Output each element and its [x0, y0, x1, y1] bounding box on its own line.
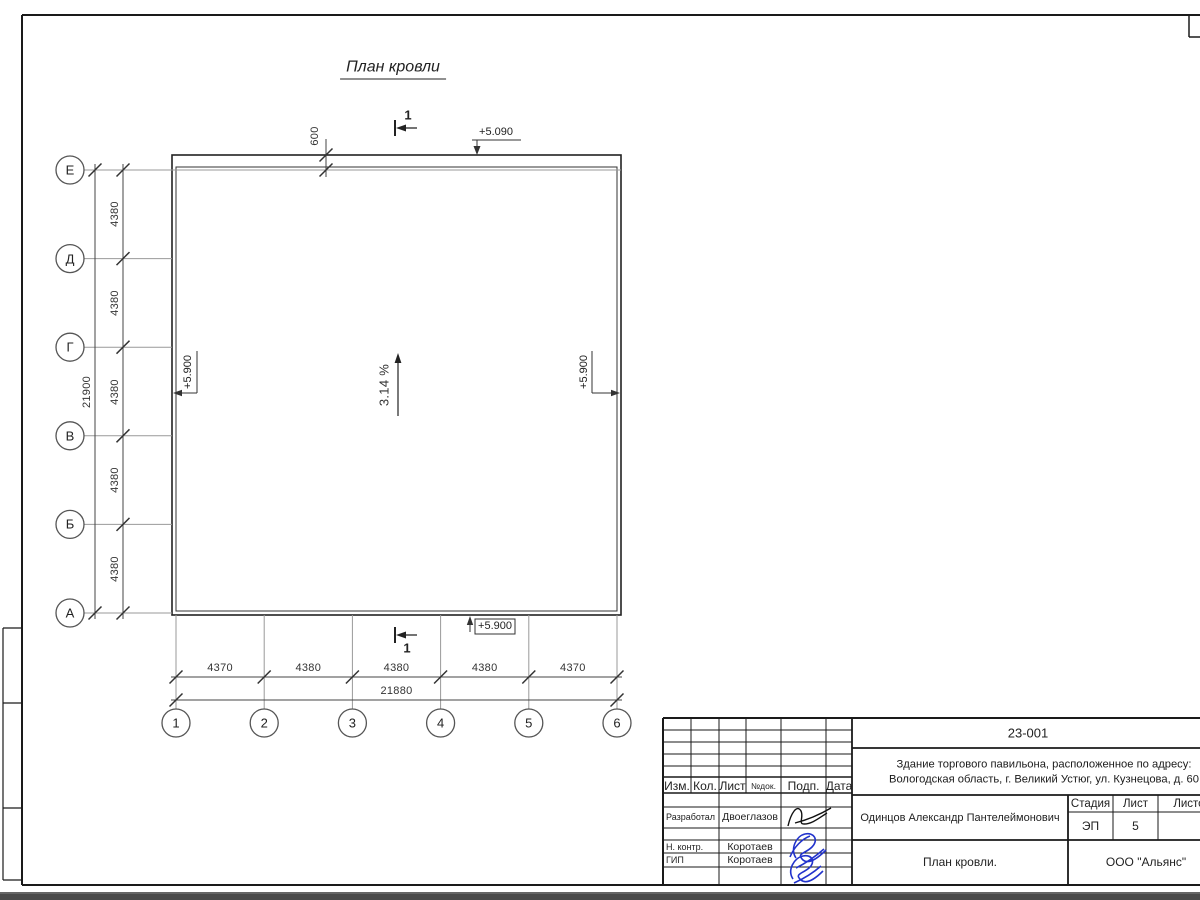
- elevation-leader-top: [472, 140, 521, 155]
- section-label-bottom: 1: [403, 641, 410, 656]
- axis-col-label-1: 2: [261, 716, 268, 731]
- elevation-right-label: +5.900: [578, 355, 590, 389]
- tb-name-gip: Коротаев: [727, 854, 772, 866]
- dim-col-3: 4380: [472, 662, 498, 674]
- dim-row-total: 21900: [81, 375, 93, 407]
- slope-label: 3.14 %: [377, 364, 392, 406]
- tb-sheets-label: Листов: [1173, 798, 1200, 810]
- elevation-leader-right: [592, 351, 620, 396]
- dim-col-1: 4380: [295, 662, 321, 674]
- tb-header-izm: Изм.: [664, 779, 690, 793]
- tb-object-address: Здание торгового павильона, расположенно…: [858, 758, 1200, 787]
- axis-row-label-4: Б: [66, 517, 75, 532]
- axis-col-label-5: 6: [613, 716, 620, 731]
- tb-object-address-line1: Здание торгового павильона, расположенно…: [858, 758, 1200, 773]
- axis-row-label-1: Д: [66, 251, 75, 266]
- axis-row-label-5: А: [66, 606, 75, 621]
- tb-company: ООО "Альянс": [1106, 855, 1186, 869]
- axis-col-label-0: 1: [172, 716, 179, 731]
- tb-header-ndok: №док.: [751, 781, 776, 791]
- axis-row-label-0: Е: [66, 163, 75, 178]
- dim-top-offset: 600: [309, 126, 321, 145]
- tb-header-kol: Кол.: [693, 779, 717, 793]
- dim-row-0: 4380: [109, 201, 121, 227]
- axis-col-label-4: 5: [525, 716, 532, 731]
- tb-name-developer: Двоеглазов: [722, 811, 778, 823]
- tb-stage-value: ЭП: [1082, 819, 1099, 833]
- axis-col-label-2: 3: [349, 716, 356, 731]
- dim-row-3: 4380: [109, 467, 121, 493]
- tb-header-data: Дата: [826, 779, 853, 793]
- slope-arrow: [395, 353, 402, 416]
- tb-header-podp: Подп.: [788, 779, 820, 793]
- elevation-top-label: +5.090: [479, 126, 513, 138]
- tb-object-address-line2: Вологодская область, г. Великий Устюг, у…: [858, 772, 1200, 787]
- tb-role-ncontrol: Н. контр.: [666, 842, 703, 852]
- dim-col-0: 4370: [207, 662, 233, 674]
- tb-sheet-label: Лист: [1123, 798, 1148, 810]
- tb-role-developer: Разработал: [666, 812, 715, 822]
- elevation-left-label: +5.900: [182, 355, 194, 389]
- signature-gip: [791, 856, 823, 883]
- tb-doc-number: 23-001: [1008, 726, 1048, 741]
- axis-col-label-3: 4: [437, 716, 444, 731]
- dimension-ticks: [89, 149, 624, 707]
- signature-ncontrol: [790, 834, 826, 868]
- tb-stage-label: Стадия: [1071, 798, 1110, 810]
- dim-col-2: 4380: [384, 662, 410, 674]
- dim-row-2: 4380: [109, 379, 121, 405]
- axis-row-label-3: В: [66, 428, 75, 443]
- tb-sheet-value: 5: [1132, 819, 1139, 833]
- dim-col-4: 4370: [560, 662, 586, 674]
- axis-bubbles: [56, 156, 631, 737]
- sheet-bottom-shadow: [0, 894, 1200, 900]
- tb-header-list: Лист: [719, 779, 745, 793]
- tb-role-gip: ГИП: [666, 855, 684, 865]
- tb-client: Одинцов Александр Пантелеймонович: [860, 812, 1059, 824]
- section-label-top: 1: [404, 108, 411, 123]
- dim-col-total: 21880: [380, 685, 412, 697]
- axis-row-label-2: Г: [66, 340, 73, 355]
- tb-name-ncontrol: Коротаев: [727, 841, 772, 853]
- elevation-bottom-label: +5.900: [478, 620, 512, 632]
- dim-row-4: 4380: [109, 556, 121, 582]
- drawing-sheet: План кровли 600 +5.090 1 1 3.14 % +5.900…: [0, 0, 1200, 900]
- signature-developer: [788, 808, 831, 826]
- tb-drawing-title: План кровли.: [923, 855, 997, 869]
- plan-title: План кровли: [340, 59, 446, 80]
- dim-row-1: 4380: [109, 290, 121, 316]
